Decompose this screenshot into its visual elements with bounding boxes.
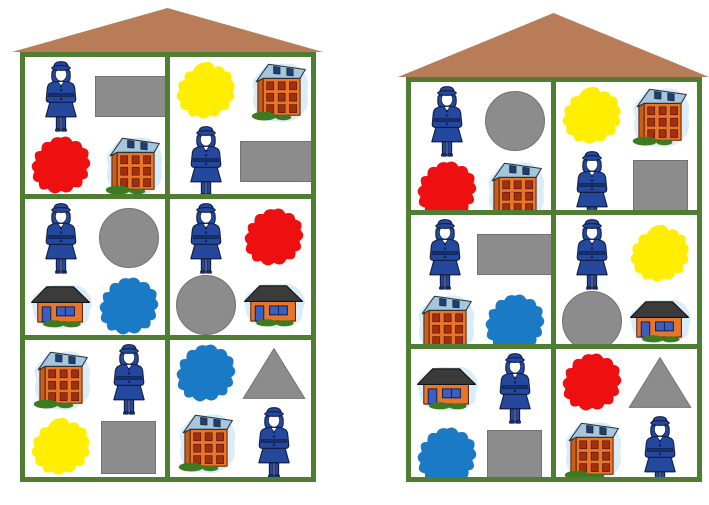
- left-house-grid: [20, 52, 316, 482]
- item-slot: [481, 425, 549, 477]
- item-slot: [558, 84, 626, 149]
- item-slot: [27, 342, 95, 416]
- gray-circle-icon: [99, 208, 159, 268]
- gray-circle-icon: [176, 275, 236, 335]
- item-slot: [413, 158, 481, 210]
- item-slot: [413, 351, 481, 425]
- yellow-blob-icon: [558, 85, 626, 148]
- item-slot: [413, 425, 481, 477]
- right-house-card: [398, 13, 709, 482]
- item-slot: [27, 275, 95, 336]
- left-house-card: [12, 8, 323, 482]
- police-officer-icon: [182, 124, 230, 194]
- police-officer-icon: [37, 201, 85, 275]
- tall-building-icon: [483, 158, 547, 210]
- gray-square-icon: [487, 430, 542, 477]
- left-house-cell-r3c2: [170, 340, 311, 477]
- police-officer-icon: [423, 84, 471, 158]
- small-house-icon: [241, 280, 307, 330]
- gray-rectangle-icon: [240, 141, 311, 182]
- tall-building-icon: [29, 347, 93, 412]
- item-slot: [626, 414, 694, 477]
- right-house-cell-r1c2: [556, 82, 697, 210]
- red-blob-icon: [413, 159, 481, 210]
- item-slot: [626, 217, 694, 291]
- item-slot: [413, 217, 477, 291]
- small-house-icon: [414, 363, 480, 413]
- item-slot: [172, 342, 240, 405]
- gray-square-icon: [633, 160, 688, 211]
- blue-blob-icon: [413, 425, 481, 477]
- item-slot: [240, 201, 308, 275]
- item-slot: [558, 414, 626, 477]
- item-slot: [172, 405, 240, 477]
- tall-building-icon: [560, 418, 624, 477]
- item-slot: [626, 84, 694, 149]
- gray-circle-icon: [485, 91, 545, 151]
- blue-blob-icon: [95, 275, 163, 336]
- police-officer-icon: [491, 351, 539, 425]
- item-slot: [172, 59, 240, 124]
- police-officer-icon: [105, 342, 153, 416]
- police-officer-icon: [182, 201, 230, 275]
- item-slot: [95, 342, 163, 416]
- item-slot: [95, 133, 166, 194]
- item-slot: [558, 149, 626, 210]
- gray-rectangle-icon: [95, 76, 166, 117]
- item-slot: [95, 59, 166, 133]
- small-house-icon: [627, 296, 693, 343]
- item-slot: [481, 84, 549, 158]
- item-slot: [27, 59, 95, 133]
- police-officer-icon: [636, 414, 684, 477]
- gray-square-icon: [101, 421, 156, 474]
- left-house-cell-r1c1: [25, 57, 166, 194]
- item-slot: [240, 124, 311, 194]
- police-officer-icon: [421, 217, 469, 291]
- item-slot: [240, 275, 308, 335]
- yellow-blob-icon: [27, 416, 95, 477]
- yellow-blob-icon: [172, 60, 240, 123]
- item-slot: [477, 217, 552, 291]
- item-slot: [626, 149, 694, 210]
- item-slot: [481, 351, 549, 425]
- item-slot: [626, 291, 694, 343]
- item-slot: [172, 275, 240, 335]
- right-house-cell-r2c2: [556, 215, 697, 343]
- left-house-cell-r3c1: [25, 340, 166, 477]
- item-slot: [558, 351, 626, 414]
- item-slot: [240, 342, 308, 405]
- item-slot: [481, 158, 549, 210]
- police-officer-icon: [568, 149, 616, 210]
- item-slot: [27, 416, 95, 477]
- tall-building-icon: [413, 291, 477, 343]
- left-house-cell-r2c1: [25, 199, 166, 336]
- gray-circle-icon: [562, 291, 622, 343]
- item-slot: [172, 124, 240, 194]
- left-house-cell-r2c2: [170, 199, 311, 336]
- left-house-cell-r1c2: [170, 57, 311, 194]
- item-slot: [413, 291, 477, 343]
- right-house-cell-r3c2: [556, 349, 697, 477]
- item-slot: [27, 201, 95, 275]
- police-officer-icon: [568, 217, 616, 291]
- item-slot: [27, 133, 95, 194]
- police-officer-icon: [37, 59, 85, 133]
- item-slot: [626, 351, 694, 414]
- item-slot: [240, 405, 308, 477]
- small-house-icon: [28, 281, 94, 331]
- blue-blob-icon: [481, 292, 549, 343]
- item-slot: [558, 291, 626, 343]
- worksheet-canvas: { "title": "police-shape-house-matching-…: [0, 0, 709, 505]
- left-house-roof-icon: [12, 8, 323, 52]
- red-blob-icon: [27, 134, 95, 194]
- item-slot: [95, 416, 163, 477]
- item-slot: [558, 217, 626, 291]
- right-house-roof-icon: [398, 13, 709, 77]
- item-slot: [413, 84, 481, 158]
- right-house-cell-r1c1: [411, 82, 552, 210]
- right-house-grid: [406, 77, 702, 482]
- item-slot: [95, 275, 163, 336]
- gray-rectangle-icon: [477, 234, 552, 275]
- right-house-cell-r2c1: [411, 215, 552, 343]
- gray-triangle-icon: [626, 355, 694, 410]
- item-slot: [95, 201, 163, 275]
- yellow-blob-icon: [626, 223, 694, 286]
- red-blob-icon: [558, 351, 626, 414]
- police-officer-icon: [250, 405, 298, 477]
- item-slot: [477, 291, 552, 343]
- tall-building-icon: [247, 59, 311, 124]
- tall-building-icon: [628, 84, 692, 149]
- red-blob-icon: [240, 206, 308, 269]
- blue-blob-icon: [172, 342, 240, 405]
- tall-building-icon: [174, 410, 238, 475]
- right-house-cell-r3c1: [411, 349, 552, 477]
- item-slot: [240, 59, 311, 124]
- gray-triangle-icon: [240, 346, 308, 401]
- tall-building-icon: [101, 133, 165, 194]
- item-slot: [172, 201, 240, 275]
